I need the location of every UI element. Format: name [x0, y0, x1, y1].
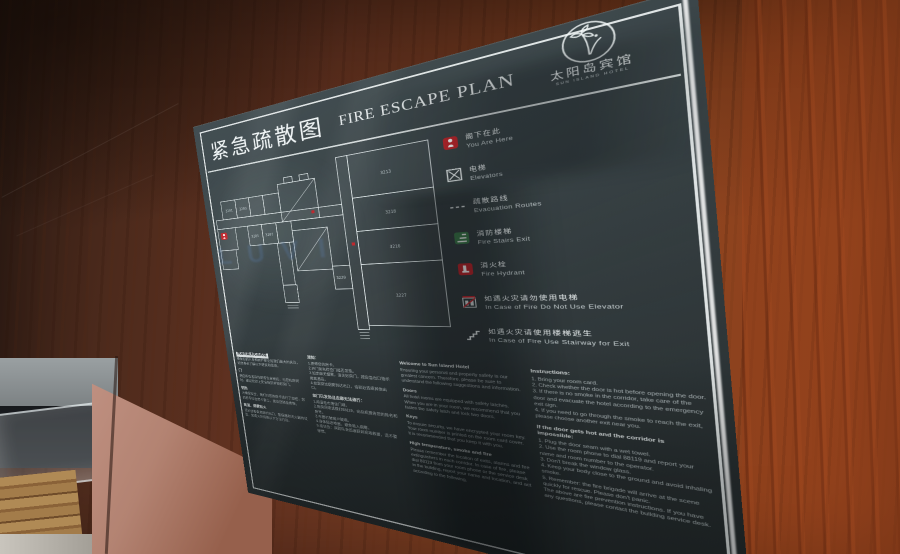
info-column-chinese-1: 欢迎光临太阳岛宾馆确保您的人身和财产安全是我们最大的关注，请您务必了解以下建议和… [235, 349, 310, 427]
you-are-here-marker-icon [220, 232, 227, 240]
photo-of-fire-escape-sign: 紧急疏散图 FIRE ESCAPE PLAN 太阳岛宾馆 SUN ISLAND … [0, 0, 900, 554]
hydrant-dot-icon [311, 210, 314, 213]
room-number: 3205 [251, 233, 260, 238]
legend-item-elevators: 电梯 Elevators [446, 160, 504, 184]
legend-item-fire-hydrant: 消火栓 Fire Hydrant [457, 259, 525, 278]
fire-hydrant-icon [457, 263, 474, 276]
wood-grain-right-band [742, 0, 900, 554]
background-floor [0, 534, 104, 554]
legend-item-use-stairway: 如遇火灾请使用楼梯逃生 In Case of Fire Use Stairway… [465, 327, 631, 348]
legend-item-evacuation-routes: 疏散路线 Evacuation Routes [449, 189, 542, 216]
you-are-here-icon [442, 135, 459, 151]
no-elevator-icon [461, 295, 478, 308]
room-number: 3227 [396, 292, 408, 298]
sign-title-english: FIRE ESCAPE PLAN [338, 70, 516, 130]
evacuation-route-icon [449, 199, 466, 214]
room-number: 3220 [336, 275, 346, 280]
elevator-icon [446, 167, 463, 182]
legend-item-you-are-here: 阁下在此 You Are Here [442, 124, 514, 153]
stairway-icon [465, 328, 482, 341]
info-column-english-instructions: Instructions:1. Bring your room card. 2.… [530, 365, 719, 532]
info-column-chinese-2: 须知：1.携带您的房卡。 2.开门前先检查门是否发热。 3.如走廊无烟雾，请关好… [306, 353, 401, 447]
room-number: 3207 [265, 232, 274, 238]
info-column-english-welcome: Welcome to Sun Island HotelEnsuring your… [399, 358, 534, 496]
legend-item-no-elevator: 如遇火灾请勿使用电梯 In Case of Fire Do Not Use El… [461, 292, 624, 310]
